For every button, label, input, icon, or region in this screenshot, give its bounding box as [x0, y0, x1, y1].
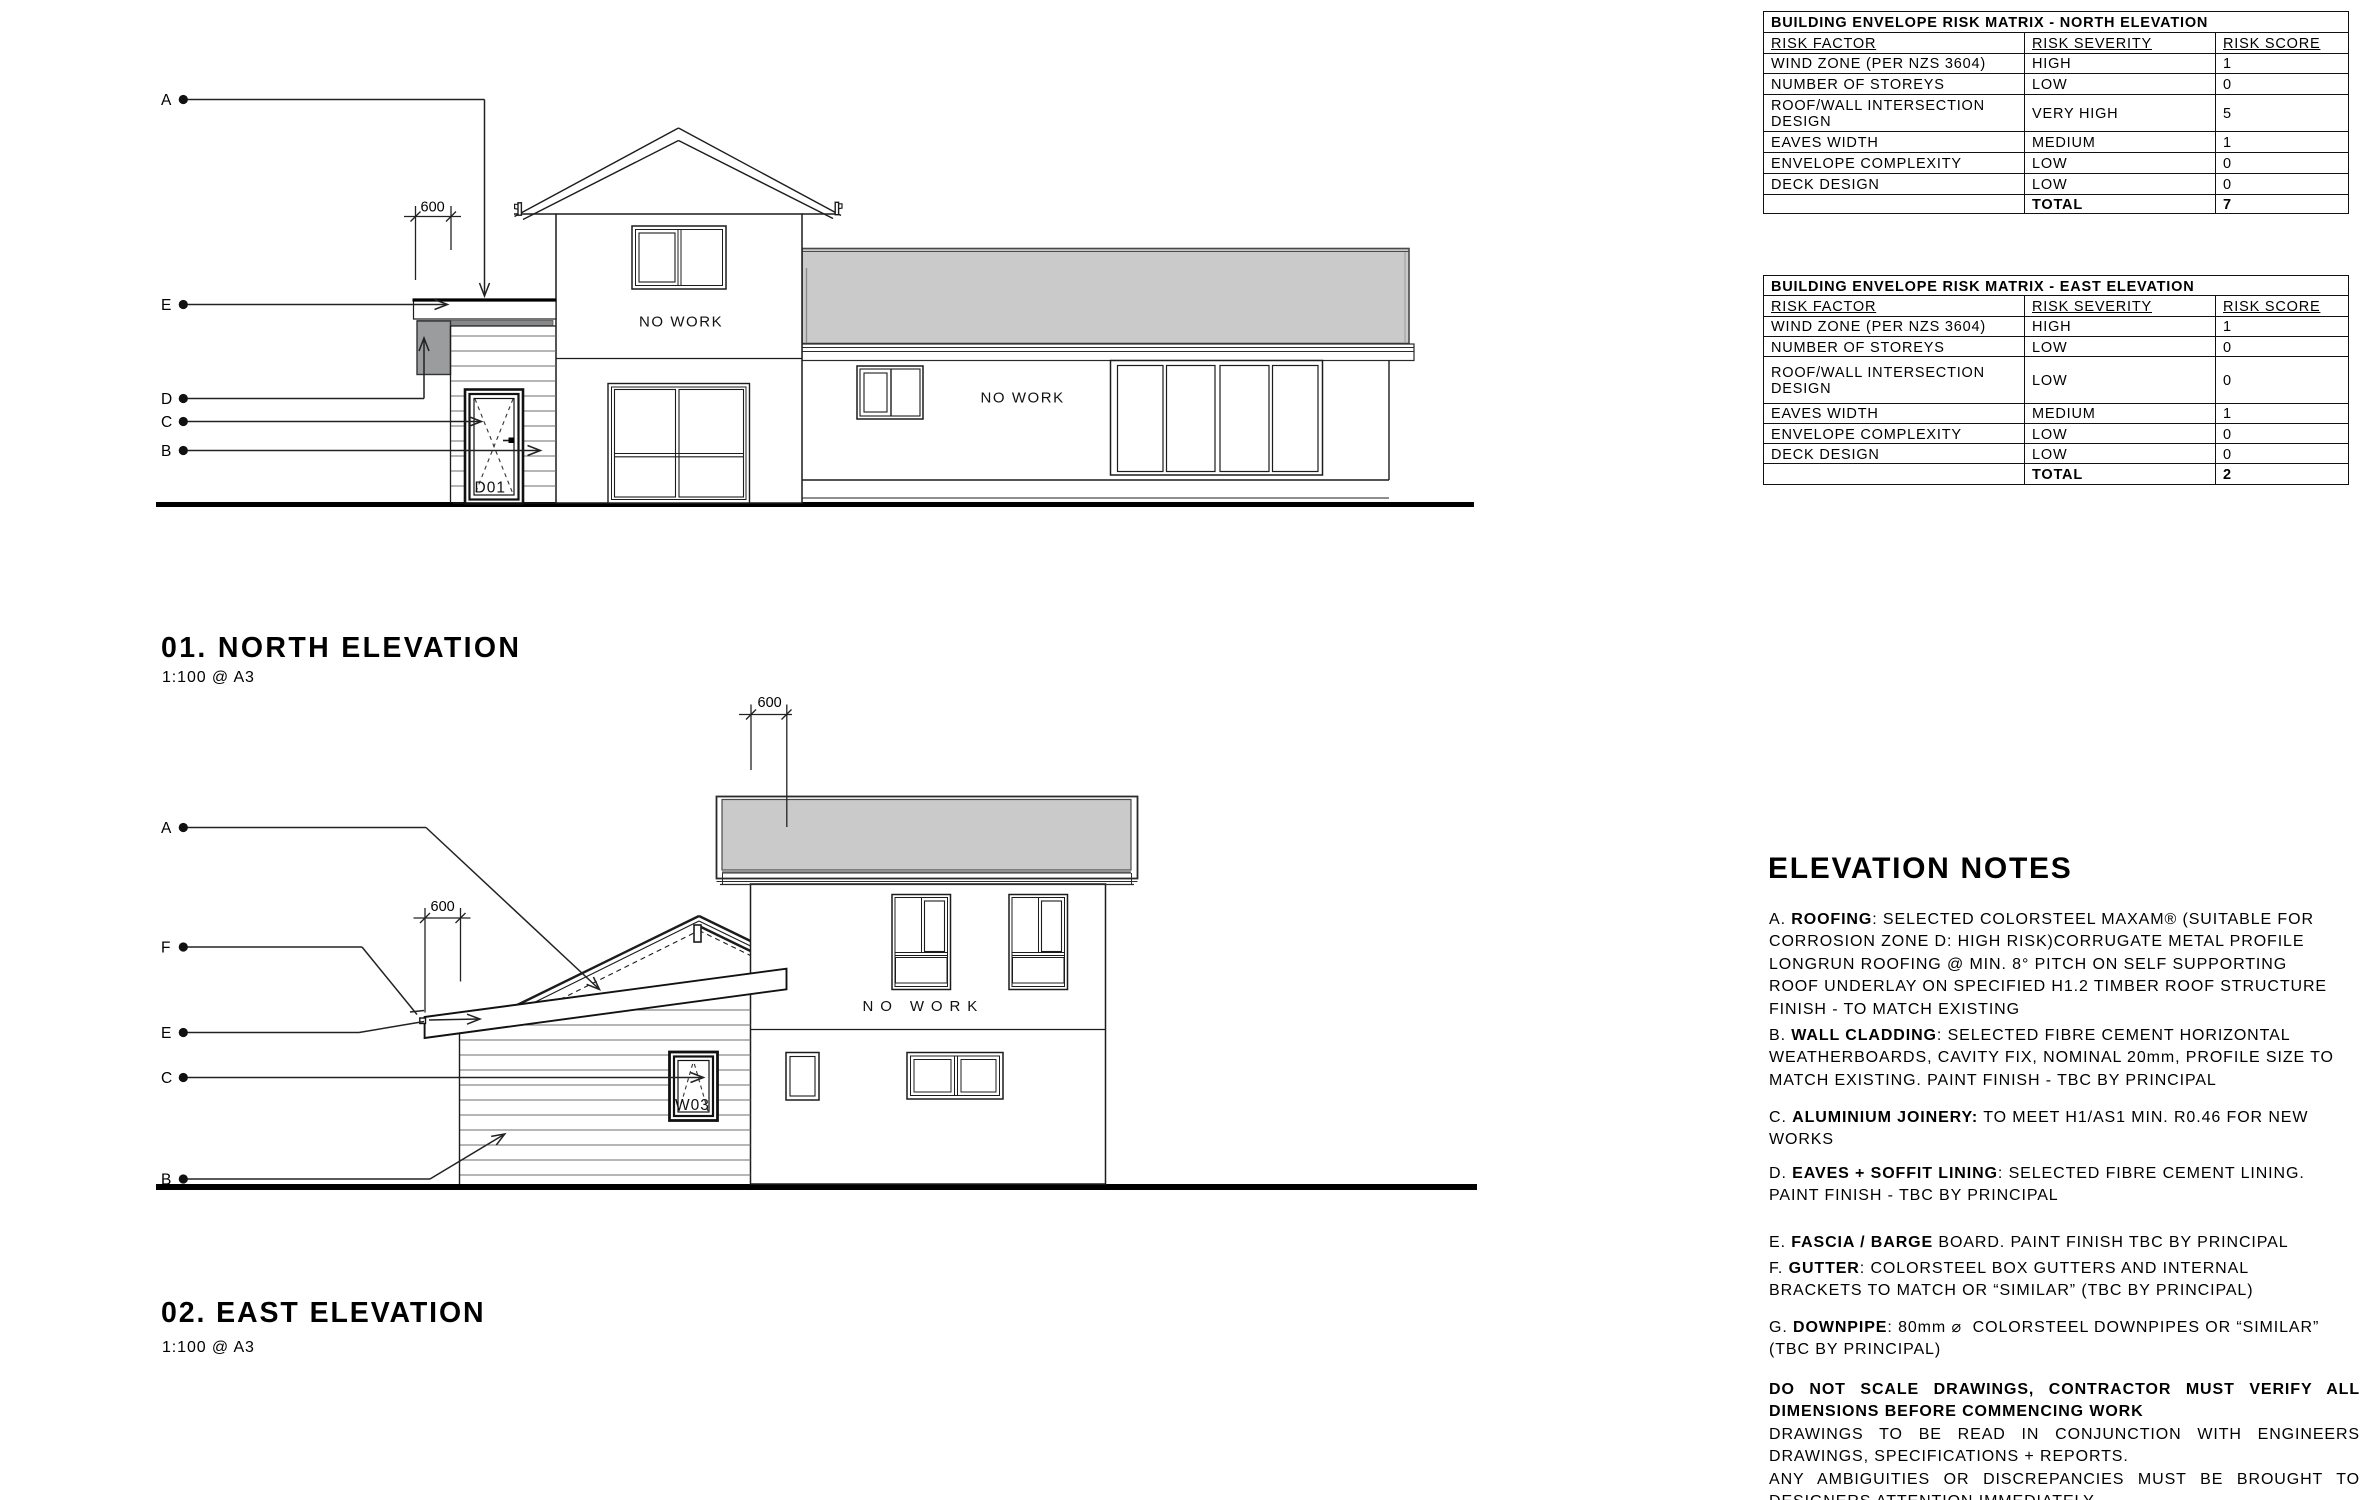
- svg-text:A: A: [161, 820, 172, 837]
- svg-text:600: 600: [758, 695, 782, 711]
- svg-text:NO WORK: NO WORK: [863, 998, 985, 1015]
- svg-text:C: C: [161, 414, 172, 431]
- svg-text:E: E: [161, 297, 171, 314]
- svg-text:B: B: [161, 443, 171, 460]
- svg-text:C: C: [161, 1070, 172, 1087]
- svg-text:600: 600: [421, 200, 445, 216]
- svg-text:600: 600: [431, 899, 455, 915]
- svg-text:W03: W03: [675, 1097, 710, 1114]
- svg-text:F: F: [161, 939, 170, 956]
- svg-text:E: E: [161, 1025, 171, 1042]
- svg-text:B: B: [161, 1171, 171, 1188]
- svg-text:D: D: [161, 391, 172, 408]
- svg-text:NO WORK: NO WORK: [639, 314, 723, 331]
- svg-text:D01: D01: [475, 480, 506, 497]
- svg-text:A: A: [161, 92, 172, 109]
- svg-text:NO WORK: NO WORK: [981, 390, 1065, 407]
